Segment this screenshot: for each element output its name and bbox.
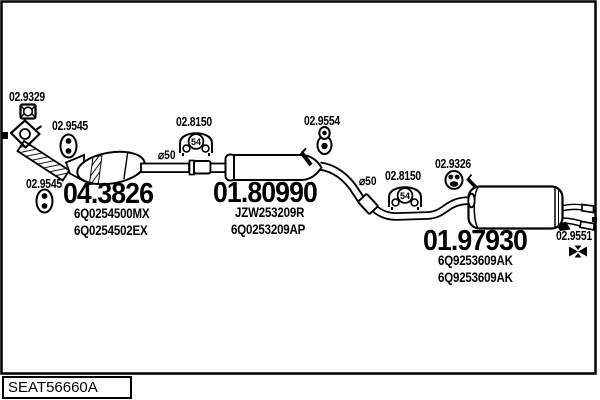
front-hanger-upper-icon — [61, 135, 77, 158]
tailpipe-bracket-icon — [569, 246, 587, 258]
label-rear-pipe-diameter: ⌀50 — [359, 175, 376, 188]
rear-clamp-size-badge: 54 — [400, 191, 410, 201]
label-rear-grommet-code: 02.9326 — [435, 157, 471, 171]
label-front-hanger-lower-code: 02.9545 — [26, 177, 62, 191]
front-clamp-size-badge: 54 — [191, 137, 201, 147]
front-clamp-icon: 54 — [180, 133, 212, 156]
label-centre-muffler-part-1: JZW253209R — [235, 205, 304, 220]
front-hanger-lower-icon — [37, 190, 53, 213]
label-front-hanger-upper-code: 02.9545 — [52, 119, 88, 133]
centre-hanger-grommet-icon — [318, 127, 332, 154]
label-front-clamp-code: 02.8150 — [176, 115, 212, 129]
rear-muffler-drawing — [468, 175, 563, 229]
edge-marker-left — [2, 132, 8, 139]
flange-gasket-icon — [21, 105, 36, 119]
label-catalyst-part-2: 6Q0254502EX — [74, 223, 148, 238]
exhaust-parts-diagram: 54 54 02.9329 0 — [0, 0, 600, 400]
drawing-number-box: SEAT56660A — [2, 376, 132, 399]
rear-grommet-icon — [446, 171, 463, 189]
rear-hanger-rod — [468, 179, 477, 188]
label-front-flange-code: 02.9329 — [9, 90, 45, 104]
pipe-sleeve-joint-front — [194, 161, 211, 174]
label-rear-muffler-part-1: 6Q9253609AK — [438, 253, 513, 268]
centre-muffler-drawing — [226, 149, 322, 181]
label-rear-clamp-code: 02.8150 — [385, 169, 421, 183]
label-centre-hanger-code: 02.9554 — [304, 114, 340, 128]
rear-clamp-icon: 54 — [389, 187, 421, 210]
front-pipe-drawing — [141, 161, 228, 175]
label-tailpipe-bracket-code: 02.9551 — [556, 229, 592, 243]
label-front-pipe-diameter: ⌀50 — [158, 149, 175, 162]
edge-marker-right — [592, 217, 597, 222]
drawing-number: SEAT56660A — [4, 379, 98, 396]
label-rear-muffler-part-2: 6Q9253609AK — [438, 270, 513, 285]
label-catalyst-part-1: 6Q0254500MX — [74, 206, 149, 221]
label-centre-muffler-part-2: 6Q0253209AP — [231, 222, 305, 237]
